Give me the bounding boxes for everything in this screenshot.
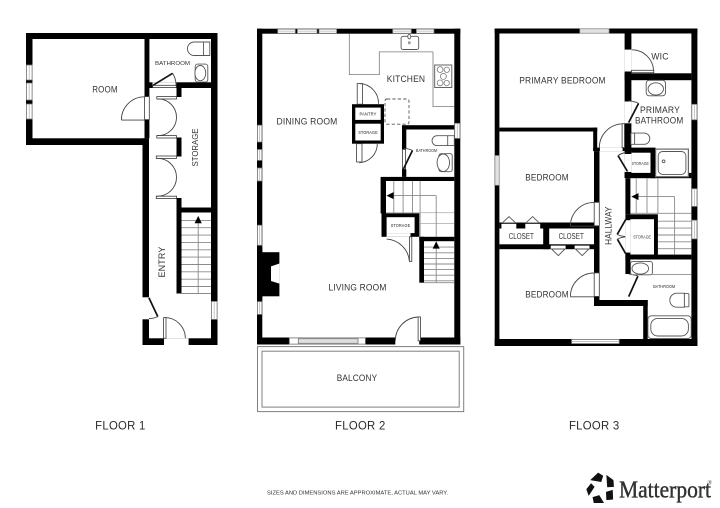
svg-text:BEDROOM: BEDROOM <box>525 173 569 183</box>
svg-text:PRIMARY BEDROOM: PRIMARY BEDROOM <box>519 76 606 86</box>
svg-text:PANTRY: PANTRY <box>360 112 377 117</box>
svg-text:BALCONY: BALCONY <box>337 373 378 383</box>
svg-text:BATHROOM: BATHROOM <box>416 148 437 153</box>
svg-text:STORAGE: STORAGE <box>190 128 200 166</box>
svg-text:FLOOR 3: FLOOR 3 <box>569 418 620 432</box>
svg-text:ROOM: ROOM <box>92 85 118 95</box>
svg-text:WIC: WIC <box>651 51 669 61</box>
svg-text:LIVING ROOM: LIVING ROOM <box>329 283 387 293</box>
svg-text:®: ® <box>708 480 713 487</box>
svg-text:HALLWAY: HALLWAY <box>604 206 614 245</box>
svg-text:CLOSET: CLOSET <box>559 231 585 241</box>
svg-text:KITCHEN: KITCHEN <box>387 74 426 84</box>
svg-text:STORAGE: STORAGE <box>633 235 651 241</box>
svg-text:BATHROOM: BATHROOM <box>155 61 190 67</box>
svg-text:PRIMARY: PRIMARY <box>640 105 680 115</box>
svg-text:BATHROOM: BATHROOM <box>635 115 684 125</box>
svg-text:FLOOR 1: FLOOR 1 <box>95 418 146 432</box>
svg-text:DINING ROOM: DINING ROOM <box>277 117 338 127</box>
svg-text:BEDROOM: BEDROOM <box>525 290 569 300</box>
svg-text:BATHROOM: BATHROOM <box>653 284 675 289</box>
svg-text:STORAGE: STORAGE <box>391 223 411 228</box>
svg-text:FLOOR 2: FLOOR 2 <box>335 418 386 432</box>
svg-text:ENTRY: ENTRY <box>157 247 167 278</box>
svg-text:Matterport: Matterport <box>619 478 711 504</box>
svg-text:CLOSET: CLOSET <box>509 231 535 241</box>
svg-text:SIZES AND DIMENSIONS ARE APPRO: SIZES AND DIMENSIONS ARE APPROXIMATE, AC… <box>267 491 448 497</box>
svg-text:STORAGE: STORAGE <box>358 130 378 135</box>
svg-text:STORAGE: STORAGE <box>632 161 649 167</box>
